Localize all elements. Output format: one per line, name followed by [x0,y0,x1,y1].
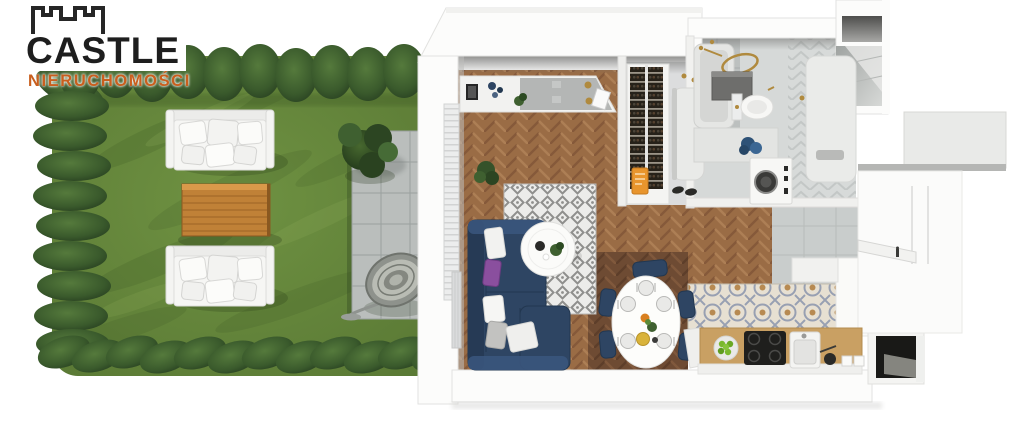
skylight-niche [842,16,882,42]
garden-tree [338,123,398,184]
vanity-counter [800,56,857,182]
induction-cooktop [744,331,786,365]
kitchen-sink [790,332,820,368]
panel-shadow [858,164,1006,171]
sideboard-counter [460,76,616,112]
apartment [418,0,1006,409]
brand-subtitle: NIERUCHOMOŚCI [28,72,191,91]
kitchen-counter [684,328,864,374]
garden-sofa-top [166,110,288,176]
switch-box [854,356,864,366]
brand-logo: CASTLE NIERUCHOMOŚCI [22,2,191,91]
garden-sofa-bottom [166,246,288,312]
switch-box [842,356,852,366]
floor-plan-render: CASTLE NIERUCHOMOŚCI [0,0,1024,429]
radiator [452,272,461,348]
balcony-door [444,104,459,300]
logo-background: CASTLE [22,2,186,71]
bathroom-counter [694,128,778,162]
kitchen-patterned-tile-floor [688,284,838,330]
fruit-bowl [714,336,738,360]
garden [30,44,468,380]
dining-chair [677,290,695,319]
wooden-garden-table [178,184,282,250]
brand-name: CASTLE [26,32,180,69]
dark-storage-niche [876,336,924,382]
washing-machine [750,158,792,204]
toilet [732,94,773,120]
wine-rack [627,64,669,204]
exterior-wall-panel [904,112,1006,168]
building-shadow [452,402,882,409]
orange-label [632,168,648,194]
